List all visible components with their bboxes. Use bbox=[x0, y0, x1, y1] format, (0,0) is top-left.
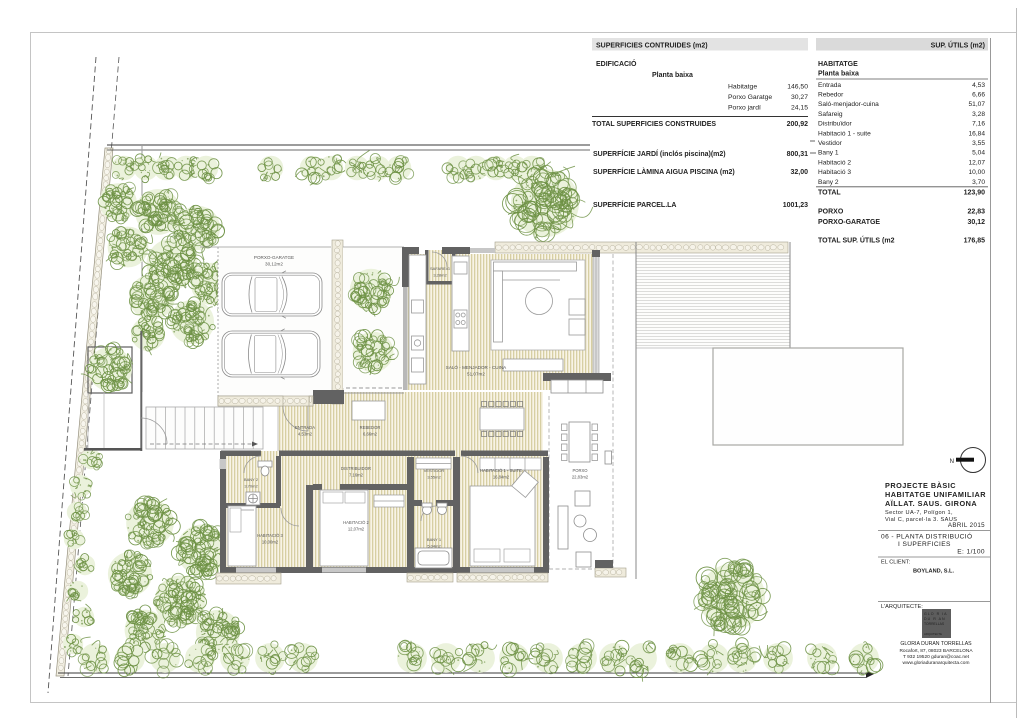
svg-text:51,07: 51,07 bbox=[968, 101, 985, 108]
svg-text:HABITATGE UNIFAMILIAR: HABITATGE UNIFAMILIAR bbox=[885, 490, 986, 499]
svg-text:Saló-menjador-cuina: Saló-menjador-cuina bbox=[818, 101, 879, 108]
svg-text:Vestidor: Vestidor bbox=[818, 140, 843, 147]
svg-text:PORXO-GARATGE: PORXO-GARATGE bbox=[818, 219, 880, 226]
svg-text:ARQUITECTE: ARQUITECTE bbox=[924, 632, 942, 636]
svg-text:Bany 1: Bany 1 bbox=[818, 150, 839, 157]
svg-text:VESTIDOR: VESTIDOR bbox=[424, 468, 445, 473]
svg-text:EDIFICACIÓ: EDIFICACIÓ bbox=[596, 59, 637, 68]
svg-text:SUPERFÍCIE JARDÍ (inclós pisci: SUPERFÍCIE JARDÍ (inclós piscina)(m2) bbox=[593, 149, 726, 158]
svg-text:Planta baixa: Planta baixa bbox=[652, 72, 693, 79]
svg-text:Bany 2: Bany 2 bbox=[818, 179, 839, 186]
svg-text:SUP. ÚTILS (m2): SUP. ÚTILS (m2) bbox=[931, 41, 985, 50]
svg-text:TOTAL: TOTAL bbox=[818, 190, 841, 197]
svg-text:DU R AN: DU R AN bbox=[924, 617, 946, 621]
svg-text:146,50: 146,50 bbox=[787, 84, 808, 91]
svg-text:4,53m2: 4,53m2 bbox=[298, 432, 313, 437]
svg-text:6,66m2: 6,66m2 bbox=[363, 432, 378, 437]
svg-text:12,07: 12,07 bbox=[968, 159, 985, 166]
svg-text:HABITATGE: HABITATGE bbox=[818, 61, 858, 68]
svg-text:BANY 2: BANY 2 bbox=[244, 477, 259, 482]
svg-text:PROJECTE BÀSIC: PROJECTE BÀSIC bbox=[885, 481, 956, 490]
svg-text:3,28: 3,28 bbox=[972, 111, 985, 118]
svg-text:HABITACIÓ 1 - SUITE: HABITACIÓ 1 - SUITE bbox=[480, 468, 522, 473]
svg-text:200,92: 200,92 bbox=[787, 121, 809, 128]
svg-text:800,31: 800,31 bbox=[787, 151, 809, 158]
svg-text:Planta baixa: Planta baixa bbox=[818, 71, 859, 78]
svg-text:30,27: 30,27 bbox=[791, 94, 808, 101]
svg-text:10,00m2: 10,00m2 bbox=[262, 540, 279, 545]
svg-text:PORXO: PORXO bbox=[572, 468, 588, 473]
svg-text:TORRELLAS: TORRELLAS bbox=[924, 622, 945, 626]
svg-text:TOTAL SUP. ÚTILS (m2: TOTAL SUP. ÚTILS (m2 bbox=[818, 236, 895, 245]
svg-text:Rocafort, 87, 08023 BARCELON: Rocafort, 87, 08023 BARCELONA bbox=[899, 648, 973, 654]
svg-text:22,83: 22,83 bbox=[967, 209, 985, 216]
svg-text:HABITACIÓ 3: HABITACIÓ 3 bbox=[257, 533, 283, 538]
svg-text:12,07m2: 12,07m2 bbox=[348, 527, 365, 532]
svg-text:5,04m2: 5,04m2 bbox=[427, 544, 441, 549]
svg-text:GLORIA DURAN TORRELLAS: GLORIA DURAN TORRELLAS bbox=[900, 641, 972, 647]
svg-text:06 - PLANTA DISTRIBUCIÓ: 06 - PLANTA DISTRIBUCIÓ bbox=[881, 532, 973, 541]
svg-text:www.gloriaduranarquitecta.com: www.gloriaduranarquitecta.com bbox=[903, 660, 970, 666]
svg-text:Habitació 3: Habitació 3 bbox=[818, 169, 851, 176]
svg-text:4,53: 4,53 bbox=[972, 82, 985, 89]
svg-text:SUPERFICIES CONTRUIDES (m2): SUPERFICIES CONTRUIDES (m2) bbox=[596, 43, 708, 50]
svg-text:24,15: 24,15 bbox=[791, 105, 808, 112]
svg-text:SUPERFÍCIE PARCEL.LA: SUPERFÍCIE PARCEL.LA bbox=[593, 200, 677, 209]
svg-text:AÏLLAT. SAUS. GIRONA: AÏLLAT. SAUS. GIRONA bbox=[885, 499, 977, 508]
svg-text:51,07m2: 51,07m2 bbox=[467, 372, 485, 377]
svg-text:TOTAL SUPERFICIES CONSTRUIDES: TOTAL SUPERFICIES CONSTRUIDES bbox=[592, 121, 716, 128]
svg-text:Entrada: Entrada bbox=[818, 82, 841, 89]
svg-text:I SUPERFICIES: I SUPERFICIES bbox=[898, 541, 951, 548]
svg-text:Vial C, parcel·la 3. SAUS: Vial C, parcel·la 3. SAUS bbox=[885, 517, 957, 523]
svg-text:10,00: 10,00 bbox=[968, 169, 985, 176]
svg-text:L'ARQUITECTE:: L'ARQUITECTE: bbox=[881, 604, 923, 610]
svg-text:3,55m2: 3,55m2 bbox=[427, 475, 441, 480]
svg-text:3,70m2: 3,70m2 bbox=[244, 484, 258, 489]
svg-text:Safareig: Safareig bbox=[818, 111, 843, 118]
svg-text:BANY 1: BANY 1 bbox=[427, 537, 442, 542]
svg-text:30,12m2: 30,12m2 bbox=[265, 262, 283, 267]
svg-text:PORXO-GARATGE: PORXO-GARATGE bbox=[254, 255, 294, 260]
svg-text:32,00: 32,00 bbox=[790, 169, 808, 176]
svg-text:3,55: 3,55 bbox=[972, 140, 985, 147]
svg-text:SAFAREIG: SAFAREIG bbox=[430, 266, 450, 271]
svg-text:N: N bbox=[950, 459, 954, 465]
svg-text:Habitació 1 - suite: Habitació 1 - suite bbox=[818, 130, 871, 137]
svg-text:3,28m2: 3,28m2 bbox=[433, 273, 447, 278]
svg-text:HABITACIÓ 2: HABITACIÓ 2 bbox=[343, 520, 369, 525]
svg-text:ENTRADA: ENTRADA bbox=[295, 425, 315, 430]
svg-text:SALÓ - MENJADOR - CUINA: SALÓ - MENJADOR - CUINA bbox=[446, 364, 507, 370]
svg-text:REBEDOR: REBEDOR bbox=[360, 425, 381, 430]
svg-text:E: 1/100: E: 1/100 bbox=[957, 549, 985, 556]
svg-text:GLO R IA: GLO R IA bbox=[924, 612, 948, 616]
svg-text:ABRIL 2015: ABRIL 2015 bbox=[948, 522, 985, 529]
svg-text:3,70: 3,70 bbox=[972, 179, 985, 186]
svg-text:Sector UA-7, Polígon 1,: Sector UA-7, Polígon 1, bbox=[885, 510, 953, 516]
svg-text:Rebedor: Rebedor bbox=[818, 92, 844, 99]
svg-text:Habitació 2: Habitació 2 bbox=[818, 159, 851, 166]
svg-text:7,16m2: 7,16m2 bbox=[349, 473, 364, 478]
svg-text:BOYLAND, S.L.: BOYLAND, S.L. bbox=[913, 569, 954, 575]
svg-text:5,04: 5,04 bbox=[972, 150, 985, 157]
svg-text:PORXO: PORXO bbox=[818, 209, 844, 216]
svg-text:1001,23: 1001,23 bbox=[783, 202, 808, 209]
svg-text:Porxo jardí: Porxo jardí bbox=[728, 105, 761, 112]
svg-text:16,84: 16,84 bbox=[968, 130, 985, 137]
svg-text:Porxo Garatge: Porxo Garatge bbox=[728, 94, 772, 101]
svg-text:SUPERFÍCIE LÀMINA AIGUA PISCIN: SUPERFÍCIE LÀMINA AIGUA PISCINA (m2) bbox=[593, 167, 735, 176]
svg-text:6,66: 6,66 bbox=[972, 92, 985, 99]
svg-text:22,83m2: 22,83m2 bbox=[572, 475, 589, 480]
svg-text:176,85: 176,85 bbox=[964, 238, 986, 245]
svg-text:Habitatge: Habitatge bbox=[728, 84, 757, 91]
svg-text:Distribuïdor: Distribuïdor bbox=[818, 121, 853, 128]
svg-text:T 932 19520 gduran@coac.net: T 932 19520 gduran@coac.net bbox=[903, 654, 970, 660]
svg-text:DISTRIBUIDOR: DISTRIBUIDOR bbox=[341, 466, 371, 471]
svg-text:7,16: 7,16 bbox=[972, 121, 985, 128]
svg-text:30,12: 30,12 bbox=[967, 219, 985, 226]
svg-text:16,84m2: 16,84m2 bbox=[493, 475, 510, 480]
svg-text:123,90: 123,90 bbox=[964, 190, 986, 197]
svg-text:EL CLIENT:: EL CLIENT: bbox=[881, 560, 910, 566]
